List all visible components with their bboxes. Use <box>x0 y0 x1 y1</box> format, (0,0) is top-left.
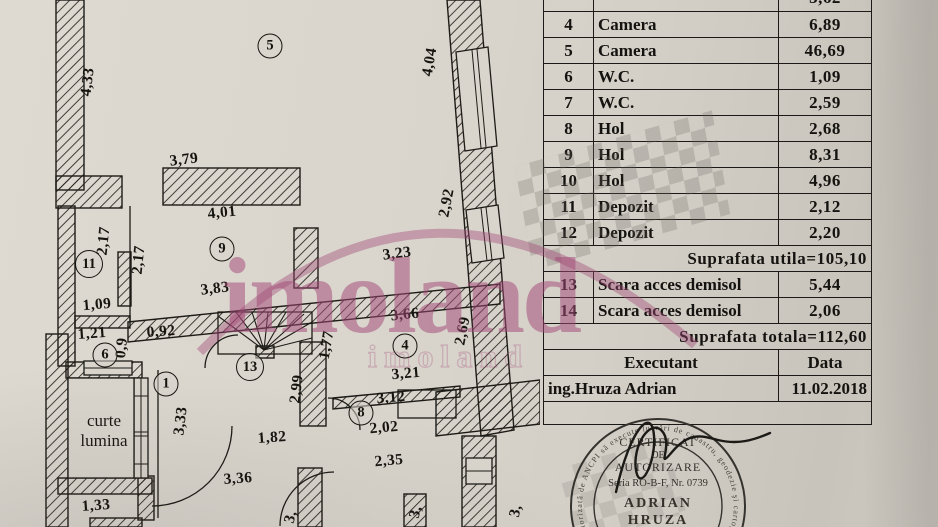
dimension-label: 3,66 <box>390 305 420 326</box>
table-cell: Scara acces demisol <box>594 298 779 324</box>
table-row: Suprafata totala=112,60 <box>544 324 872 350</box>
dimension-label: 2,17 <box>129 245 150 275</box>
table-cell: W.C. <box>594 90 779 116</box>
table-cell: 6,89 <box>779 12 872 38</box>
table-row: 9Hol8,31 <box>544 142 872 168</box>
table-cell: 2,59 <box>779 90 872 116</box>
table-row: 3,62 <box>544 0 872 12</box>
dimension-label: 3,33 <box>170 406 191 437</box>
dimension-label: 2,92 <box>435 187 458 219</box>
table-cell: W.C. <box>594 64 779 90</box>
stamp-line-seria: Seria RO-B-F, Nr. 0739 <box>608 478 708 489</box>
table-row: 13Scara acces demisol5,44 <box>544 272 872 298</box>
table-cell: 11 <box>544 194 594 220</box>
table-row: ing.Hruza Adrian11.02.2018 <box>544 376 872 402</box>
dimension-label: 1,33 <box>81 496 111 516</box>
table-cell: ing.Hruza Adrian <box>544 376 779 402</box>
table-row: Suprafata utila=105,10 <box>544 246 872 272</box>
table-row: 11Depozit2,12 <box>544 194 872 220</box>
dimension-label: 2,99 <box>286 374 307 405</box>
table-row: 14Scara acces demisol2,06 <box>544 298 872 324</box>
curte-lumina-label-line2: lumina <box>80 431 127 451</box>
dimension-label: 1,21 <box>77 324 107 344</box>
certification-stamp: fizică autorizată de ANCPI să execute lu… <box>540 400 938 527</box>
table-row: ExecutantData <box>544 350 872 376</box>
table-cell: Executant <box>544 350 779 376</box>
table-cell: Camera <box>594 12 779 38</box>
table-cell: 9 <box>544 142 594 168</box>
table-cell: Hol <box>594 142 779 168</box>
table-row: 8Hol2,68 <box>544 116 872 142</box>
dimension-label: 1,09 <box>82 295 112 315</box>
table-cell: 2,20 <box>779 220 872 246</box>
dimension-label: 3, <box>506 503 526 519</box>
dimension-label: 1,77 <box>316 329 339 360</box>
room-number-circle: 6 <box>93 343 118 368</box>
room-number-circle: 4 <box>393 334 418 359</box>
table-cell: Scara acces demisol <box>594 272 779 298</box>
table-cell: 46,69 <box>779 38 872 64</box>
dimension-label: 3, <box>281 509 301 525</box>
curte-lumina-label-line1: curte <box>87 411 121 431</box>
table-cell: 2,12 <box>779 194 872 220</box>
table-cell: Suprafata totala=112,60 <box>544 324 872 350</box>
room-number-circle: 11 <box>75 250 103 278</box>
table-cell: 8,31 <box>779 142 872 168</box>
dimension-label: 2,35 <box>374 451 404 471</box>
table-row: 5Camera46,69 <box>544 38 872 64</box>
table-cell: 7 <box>544 90 594 116</box>
table-cell: Camera <box>594 38 779 64</box>
dimension-label: 3,21 <box>391 364 421 384</box>
scanned-floor-plan-page: 4,334,043,794,012,922,172,173,233,831,09… <box>0 0 938 527</box>
dimension-label: 3,12 <box>376 388 406 408</box>
dimension-label: 0,92 <box>146 322 176 342</box>
table-cell: 14 <box>544 298 594 324</box>
table-cell: Data <box>779 350 872 376</box>
room-number-circle: 9 <box>210 237 235 262</box>
table-cell <box>544 0 594 12</box>
dimension-label: 4,04 <box>419 46 442 77</box>
stamp-line-autorizare: AUTORIZARE <box>615 460 701 474</box>
table-cell: Depozit <box>594 194 779 220</box>
table-row: 12Depozit2,20 <box>544 220 872 246</box>
table-cell: 4 <box>544 12 594 38</box>
table-cell: Suprafata utila=105,10 <box>544 246 872 272</box>
room-number-circle: 8 <box>349 401 374 426</box>
table-cell: 1,09 <box>779 64 872 90</box>
table-cell: 12 <box>544 220 594 246</box>
table-cell: Depozit <box>594 220 779 246</box>
table-cell: Hol <box>594 168 779 194</box>
table-row: 7W.C.2,59 <box>544 90 872 116</box>
dimension-label: 3, <box>406 504 426 520</box>
table-cell: 11.02.2018 <box>779 376 872 402</box>
table-cell: 2,68 <box>779 116 872 142</box>
dimension-label: 3,83 <box>200 278 231 299</box>
table-row: 4Camera6,89 <box>544 12 872 38</box>
table-cell: 10 <box>544 168 594 194</box>
stamp-line-hruza: HRUZA <box>628 513 689 527</box>
area-table-body: 3,624Camera6,895Camera46,696W.C.1,097W.C… <box>544 0 872 425</box>
dimension-label: 3,79 <box>169 149 200 170</box>
dimension-label: 3,36 <box>223 469 253 489</box>
table-cell <box>594 0 779 12</box>
table-cell: 5,44 <box>779 272 872 298</box>
table-row: 10Hol4,96 <box>544 168 872 194</box>
room-number-circle: 1 <box>154 372 179 397</box>
dimension-label: 3,23 <box>382 243 413 264</box>
dimension-label: 2,02 <box>369 418 399 438</box>
table-cell: 8 <box>544 116 594 142</box>
table-cell: 2,06 <box>779 298 872 324</box>
room-number-circle: 5 <box>258 34 283 59</box>
table-cell: 5 <box>544 38 594 64</box>
room-number-circle: 13 <box>236 353 264 381</box>
dimension-label: 2,69 <box>451 315 474 347</box>
table-cell: 3,62 <box>779 0 872 12</box>
table-row: 6W.C.1,09 <box>544 64 872 90</box>
table-cell: 6 <box>544 64 594 90</box>
table-cell: 4,96 <box>779 168 872 194</box>
dimension-label: 4,01 <box>207 203 237 224</box>
dimension-label: 1,82 <box>257 428 287 448</box>
table-cell: Hol <box>594 116 779 142</box>
area-table: 3,624Camera6,895Camera46,696W.C.1,097W.C… <box>543 0 871 425</box>
stamp-line-adrian: ADRIAN <box>624 496 692 511</box>
table-cell: 13 <box>544 272 594 298</box>
dimension-label: 4,33 <box>77 67 98 98</box>
